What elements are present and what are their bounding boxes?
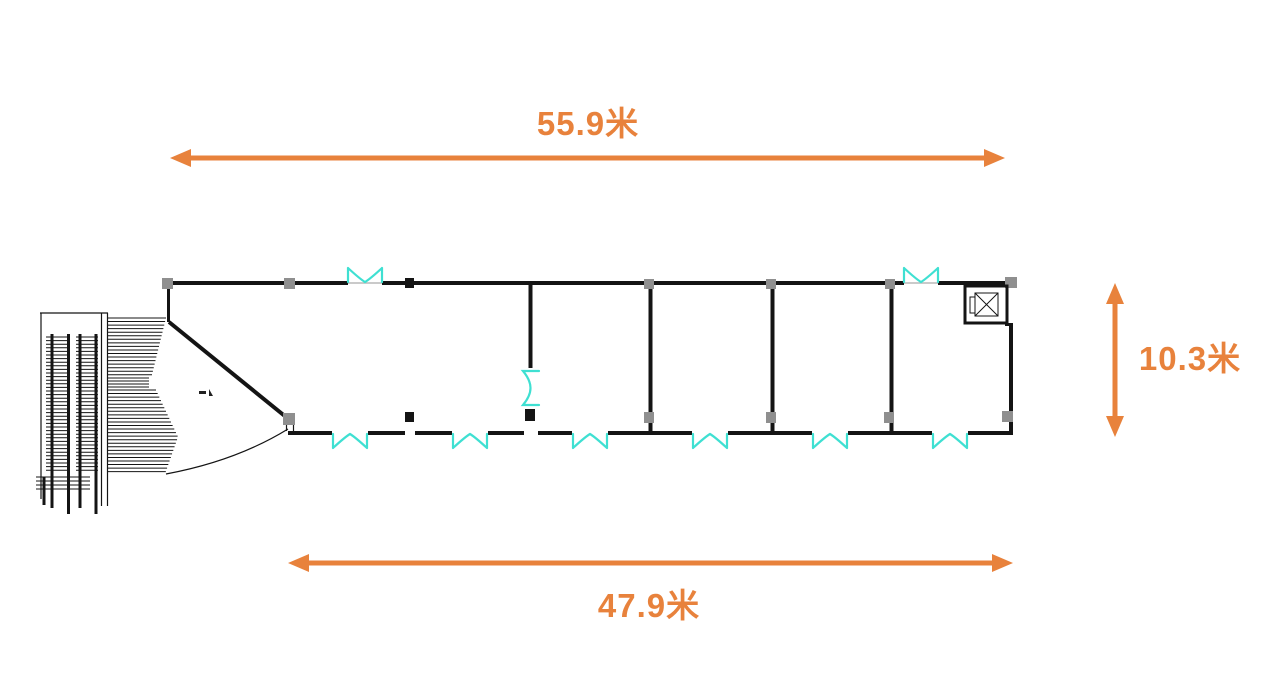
escalator-stairs-icon <box>36 313 213 514</box>
entry-swing-arc <box>166 429 288 474</box>
double-swing-door-icon <box>453 434 487 448</box>
wall-ticks <box>405 278 535 422</box>
double-swing-door-icon <box>933 434 967 448</box>
stair-direction-mark <box>199 389 213 396</box>
dimension-arrow-top <box>170 149 1005 167</box>
double-swing-door-icon <box>348 268 382 282</box>
dimension-arrow-right <box>1106 283 1124 437</box>
dimension-label-top-width: 55.9米 <box>537 97 639 145</box>
double-swing-door-icon <box>904 268 938 282</box>
dimension-arrow-bottom <box>288 554 1013 572</box>
double-swing-door-icon <box>333 434 367 448</box>
dimension-label-bottom-width: 47.9米 <box>598 579 700 627</box>
elevator-icon <box>965 286 1007 323</box>
partition-walls <box>531 285 892 431</box>
dimension-label-right-height: 10.3米 <box>1139 332 1241 380</box>
floor-plan-page: 55.9米 47.9米 10.3米 <box>0 0 1280 700</box>
double-swing-door-icon-vertical <box>523 371 539 405</box>
column-markers <box>162 277 1017 425</box>
outer-walls <box>166 278 1013 474</box>
double-swing-door-icon <box>693 434 727 448</box>
double-swing-door-icon <box>573 434 607 448</box>
double-swing-door-icon <box>813 434 847 448</box>
double-swing-door-icon-row-bottom <box>333 434 967 448</box>
double-swing-door-icon-row-top <box>348 268 938 282</box>
